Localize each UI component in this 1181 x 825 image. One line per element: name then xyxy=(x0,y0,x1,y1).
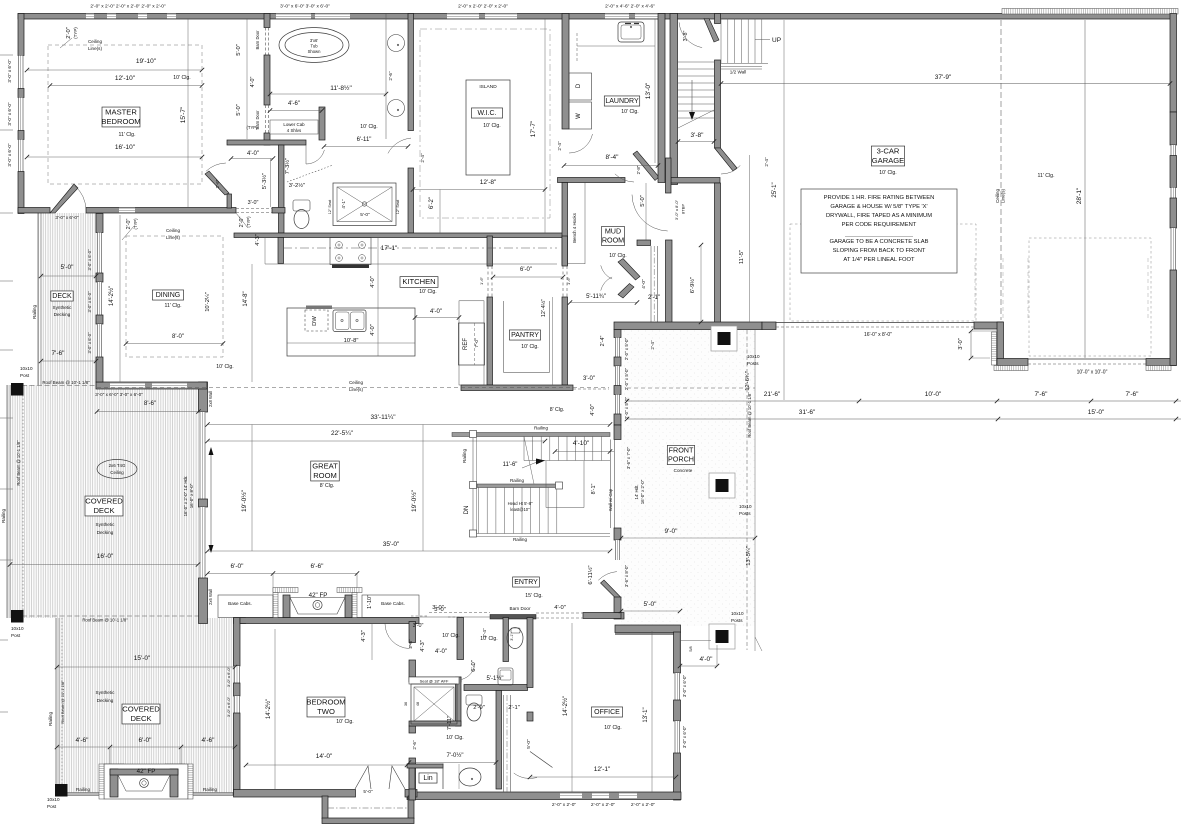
svg-text:4'-0": 4'-0" xyxy=(700,656,714,663)
svg-text:SLOPING FROM BACK TO FRONT: SLOPING FROM BACK TO FRONT xyxy=(833,248,926,254)
svg-text:14'-2½": 14'-2½" xyxy=(265,699,272,719)
svg-text:10' Clg.: 10' Clg. xyxy=(521,344,538,350)
svg-text:42" FP: 42" FP xyxy=(137,768,156,775)
svg-text:Concrete: Concrete xyxy=(674,468,693,473)
svg-text:5'-1½": 5'-1½" xyxy=(487,675,504,682)
svg-text:15'-0": 15'-0" xyxy=(1088,409,1105,416)
svg-text:least@10": least@10" xyxy=(510,507,530,512)
svg-text:3'-0" x 6'-0": 3'-0" x 6'-0" xyxy=(226,696,231,717)
svg-text:37'-9": 37'-9" xyxy=(935,74,952,81)
svg-text:8'-0": 8'-0" xyxy=(172,334,184,340)
svg-text:Railing: Railing xyxy=(462,449,467,463)
svg-text:4'-0": 4'-0" xyxy=(247,151,259,157)
svg-text:4 Shlvs: 4 Shlvs xyxy=(287,128,302,133)
svg-text:2'-6": 2'-6" xyxy=(412,740,417,750)
svg-text:10' Clg.: 10' Clg. xyxy=(609,253,626,259)
svg-text:PER CODE REQUIREMENT: PER CODE REQUIREMENT xyxy=(842,222,917,228)
svg-text:3-CAR: 3-CAR xyxy=(877,147,900,156)
svg-text:GREAT: GREAT xyxy=(312,462,338,471)
svg-text:13'-5¼": 13'-5¼" xyxy=(746,546,752,566)
svg-text:5'-3½": 5'-3½" xyxy=(261,173,268,189)
svg-text:19'-10": 19'-10" xyxy=(136,58,157,65)
svg-text:11' Clg.: 11' Clg. xyxy=(164,303,181,309)
svg-text:4'-0": 4'-0" xyxy=(554,605,566,611)
svg-text:13'-1": 13'-1" xyxy=(643,707,649,722)
svg-text:3'-0" x 6'-0" 3'-0" x 6'-0": 3'-0" x 6'-0" 3'-0" x 6'-0" xyxy=(280,4,330,10)
svg-text:7'-0": 7'-0" xyxy=(474,338,479,348)
svg-text:7'-3½": 7'-3½" xyxy=(284,158,291,174)
svg-text:2'-8": 2'-8" xyxy=(408,639,413,649)
svg-text:15'-7": 15'-7" xyxy=(180,106,187,123)
svg-text:6'-11½": 6'-11½" xyxy=(587,565,594,584)
svg-text:1/2 Wall: 1/2 Wall xyxy=(730,70,746,75)
svg-text:4'-3": 4'-3" xyxy=(255,234,261,246)
svg-text:31'-6": 31'-6" xyxy=(799,409,816,416)
svg-text:Bench 4 Hooks: Bench 4 Hooks xyxy=(572,212,577,243)
svg-text:Seat @ 18" AFF: Seat @ 18" AFF xyxy=(420,679,449,684)
svg-text:9'-0": 9'-0" xyxy=(665,528,679,535)
svg-text:10x10: 10x10 xyxy=(731,611,744,616)
svg-text:(TYP): (TYP) xyxy=(246,216,251,228)
svg-text:2'-0" x 5'-0": 2'-0" x 5'-0" xyxy=(624,368,629,391)
svg-text:BEDROOM: BEDROOM xyxy=(306,698,345,707)
svg-text:Roof Beam @ 10'-1 1/8": Roof Beam @ 10'-1 1/8" xyxy=(60,680,65,724)
svg-text:10' Clg.: 10' Clg. xyxy=(419,289,436,295)
svg-text:10' Clg.: 10' Clg. xyxy=(442,633,459,639)
svg-text:4'-0": 4'-0" xyxy=(590,404,596,416)
svg-text:Line(s): Line(s) xyxy=(1001,189,1006,204)
svg-text:4'-1": 4'-1" xyxy=(341,199,346,209)
svg-text:11'-8½": 11'-8½" xyxy=(330,84,352,92)
svg-text:Posts: Posts xyxy=(747,361,759,366)
svg-text:7'-6": 7'-6" xyxy=(1035,391,1049,398)
svg-text:28'-1": 28'-1" xyxy=(1076,187,1083,204)
svg-text:Head Ht 5'-8": Head Ht 5'-8" xyxy=(508,501,533,506)
svg-text:10x10: 10x10 xyxy=(20,366,33,371)
svg-text:KITCHEN: KITCHEN xyxy=(402,277,435,286)
svg-text:DECK: DECK xyxy=(130,714,151,723)
svg-text:Ceiling: Ceiling xyxy=(110,470,124,475)
svg-text:10' Clg.: 10' Clg. xyxy=(879,170,896,176)
svg-text:19'-0½": 19'-0½" xyxy=(240,489,248,512)
svg-text:2'-0" x 4'-6" 2'-0" x 4'-6": 2'-0" x 4'-6" 2'-0" x 4'-6" xyxy=(605,4,655,10)
svg-text:2x6 Wall: 2x6 Wall xyxy=(208,589,213,605)
svg-text:COVERED: COVERED xyxy=(85,497,123,506)
svg-text:5'-0": 5'-0" xyxy=(236,44,242,56)
svg-text:Line(s): Line(s) xyxy=(88,46,103,51)
svg-text:5'-11¾": 5'-11¾" xyxy=(586,294,606,300)
svg-text:Roof Beam @ 10'-1 1/8": Roof Beam @ 10'-1 1/8" xyxy=(16,440,21,486)
svg-text:Lin: Lin xyxy=(423,775,432,782)
svg-text:ISLAND: ISLAND xyxy=(479,84,497,90)
svg-text:12'-10": 12'-10" xyxy=(115,75,136,82)
svg-text:10'-8": 10'-8" xyxy=(344,338,359,344)
svg-text:MUD: MUD xyxy=(605,227,621,236)
svg-text:4'-3": 4'-3" xyxy=(420,640,426,652)
svg-text:17'-1": 17'-1" xyxy=(381,245,398,252)
svg-text:DN: DN xyxy=(464,506,470,515)
svg-text:7'-6": 7'-6" xyxy=(52,350,66,357)
svg-text:COVERED: COVERED xyxy=(122,705,160,714)
svg-text:Ceiling: Ceiling xyxy=(349,380,363,385)
svg-text:8' Clg.: 8' Clg. xyxy=(550,407,565,413)
svg-text:Line(s): Line(s) xyxy=(349,387,364,392)
svg-text:36: 36 xyxy=(404,702,408,706)
svg-text:Railing: Railing xyxy=(510,478,524,483)
svg-text:5'-0": 5'-0" xyxy=(640,195,646,207)
svg-text:W.I.C.: W.I.C. xyxy=(477,110,496,117)
svg-text:Railing: Railing xyxy=(32,305,37,319)
svg-text:10' Clg.: 10' Clg. xyxy=(173,75,190,81)
svg-text:Post: Post xyxy=(20,373,30,378)
svg-text:Synthetic: Synthetic xyxy=(96,690,116,695)
svg-text:2'-0": 2'-0" xyxy=(66,27,72,39)
svg-text:6'-0": 6'-0" xyxy=(471,660,477,672)
svg-text:PORCH: PORCH xyxy=(668,454,694,463)
svg-text:AT 1/4" PER LINEAL FOOT: AT 1/4" PER LINEAL FOOT xyxy=(843,257,915,263)
svg-text:25'-1": 25'-1" xyxy=(772,182,778,197)
svg-text:Roof Beam @ 10'-1 1/8": Roof Beam @ 10'-1 1/8" xyxy=(42,380,90,385)
svg-text:PROVIDE 1 HR. FIRE RATING BETW: PROVIDE 1 HR. FIRE RATING BETWEEN xyxy=(824,195,935,201)
svg-text:Tub: Tub xyxy=(310,44,318,49)
svg-text:12'-4½": 12'-4½" xyxy=(540,299,547,317)
svg-text:1'-6": 1'-6" xyxy=(479,276,484,285)
svg-text:3'-0": 3'-0" xyxy=(248,200,259,206)
svg-text:10' Clg.: 10' Clg. xyxy=(621,109,638,115)
svg-text:3'-6" x 8'-0": 3'-6" x 8'-0" xyxy=(624,565,629,588)
svg-text:12'-1": 12'-1" xyxy=(594,766,611,773)
svg-text:6'-0": 6'-0" xyxy=(520,267,532,273)
svg-text:Barn Door: Barn Door xyxy=(255,30,260,50)
svg-text:7'-0½": 7'-0½" xyxy=(447,752,464,759)
svg-text:FRONT: FRONT xyxy=(669,446,694,455)
svg-text:4'-0": 4'-0" xyxy=(370,276,376,288)
svg-text:14'-2½": 14'-2½" xyxy=(108,286,115,306)
svg-text:Railing: Railing xyxy=(1,509,6,523)
svg-text:2'-0" x 2'-0": 2'-0" x 2'-0" xyxy=(552,802,576,808)
svg-text:DRYWALL, FIRE TAPED AS A MINIM: DRYWALL, FIRE TAPED AS A MINIMUM xyxy=(826,213,932,219)
svg-text:10' Clg.: 10' Clg. xyxy=(336,719,353,725)
svg-text:2'-0" x 5'-0": 2'-0" x 5'-0" xyxy=(624,338,629,361)
svg-text:10' Clg.: 10' Clg. xyxy=(216,364,233,370)
svg-text:MASTER: MASTER xyxy=(105,108,137,117)
svg-text:2'-0": 2'-0" xyxy=(126,219,132,230)
svg-text:Decking: Decking xyxy=(97,530,114,535)
svg-text:BEDROOM: BEDROOM xyxy=(101,117,140,126)
svg-text:14'-0": 14'-0" xyxy=(316,753,333,760)
svg-text:ENTRY: ENTRY xyxy=(514,579,538,586)
svg-text:14'-8": 14'-8" xyxy=(243,291,249,306)
svg-text:3'-0" x 6'-0": 3'-0" x 6'-0" xyxy=(55,215,79,220)
svg-text:3'-0" x 6'-0": 3'-0" x 6'-0" xyxy=(87,249,92,271)
svg-text:3'-0" x 6'-0": 3'-0" x 6'-0" xyxy=(7,59,12,83)
svg-text:3'-0" x 6'-0" 3'-0" x 6'-0": 3'-0" x 6'-0" 3'-0" x 6'-0" xyxy=(95,392,143,397)
svg-text:2'-4": 2'-4" xyxy=(600,336,606,347)
svg-text:3'-0" x 6'-0": 3'-0" x 6'-0" xyxy=(682,726,687,749)
svg-text:3'-0" x 6'-0": 3'-0" x 6'-0" xyxy=(226,666,231,687)
svg-text:5'-0": 5'-0" xyxy=(61,264,75,271)
svg-text:3'-0": 3'-0" xyxy=(432,605,444,611)
svg-text:10'-0": 10'-0" xyxy=(925,391,942,398)
svg-text:2x8 Wall: 2x8 Wall xyxy=(208,391,213,407)
svg-text:6'-6": 6'-6" xyxy=(311,563,325,570)
svg-text:4'-0": 4'-0" xyxy=(370,324,376,336)
svg-text:4'-3": 4'-3" xyxy=(361,630,367,642)
svg-text:22'-5¼": 22'-5¼" xyxy=(331,430,354,437)
svg-text:6'-9½": 6'-9½" xyxy=(689,277,696,293)
svg-text:UP: UP xyxy=(772,37,781,44)
svg-text:3'-0": 3'-0" xyxy=(958,338,964,350)
svg-text:Railing: Railing xyxy=(513,537,527,542)
svg-text:DW: DW xyxy=(312,316,318,326)
svg-text:6'-0": 6'-0" xyxy=(139,737,153,744)
svg-text:16'-10": 16'-10" xyxy=(115,144,136,151)
svg-text:3'-0" x 8'-0": 3'-0" x 8'-0" xyxy=(674,199,679,220)
svg-text:3'-0" x 6'-0": 3'-0" x 6'-0" xyxy=(87,332,92,354)
svg-text:Railing: Railing xyxy=(203,787,217,792)
svg-text:Decking: Decking xyxy=(54,312,71,317)
svg-text:Ceiling: Ceiling xyxy=(166,228,180,233)
svg-text:10'-2¼": 10'-2¼" xyxy=(205,292,211,312)
svg-text:10x10: 10x10 xyxy=(747,354,760,359)
svg-text:2'-4": 2'-4" xyxy=(650,340,655,350)
svg-text:3'-1": 3'-1" xyxy=(510,633,514,641)
svg-text:DINING: DINING xyxy=(156,292,181,299)
svg-text:Lower Cab: Lower Cab xyxy=(283,122,305,127)
svg-text:1'-6": 1'-6" xyxy=(566,276,571,285)
svg-text:TWO: TWO xyxy=(317,707,335,716)
svg-text:5'-0": 5'-0" xyxy=(644,601,658,608)
svg-text:(TYP): (TYP) xyxy=(133,218,138,230)
svg-text:4'-6": 4'-6" xyxy=(202,737,216,744)
svg-text:12" Seat: 12" Seat xyxy=(396,199,400,214)
svg-text:(TYP): (TYP) xyxy=(73,27,78,39)
svg-text:13'-0": 13'-0" xyxy=(645,82,652,99)
svg-text:4'-6": 4'-6" xyxy=(288,101,300,107)
svg-text:GARAGE & HOUSE W/ 5/8" TYPE 'X: GARAGE & HOUSE W/ 5/8" TYPE 'X' xyxy=(830,204,927,210)
svg-text:5'-0": 5'-0" xyxy=(363,789,373,794)
svg-text:2'-4": 2'-4" xyxy=(482,628,487,638)
svg-text:19'-0½": 19'-0½" xyxy=(410,489,418,512)
svg-text:2'-0" x 5'-0": 2'-0" x 5'-0" xyxy=(624,397,629,420)
svg-text:11' Clg.: 11' Clg. xyxy=(1037,173,1054,179)
svg-text:12'-8": 12'-8" xyxy=(480,179,497,186)
svg-text:15'-0": 15'-0" xyxy=(134,655,151,662)
svg-text:10' Clg.: 10' Clg. xyxy=(604,725,621,731)
svg-text:2'-0" x 2'-0" 2'-0" x 2'-0": 2'-0" x 2'-0" 2'-0" x 2'-0" 2'-0" x 2'-0… xyxy=(90,4,165,10)
svg-text:4'-0": 4'-0" xyxy=(430,309,442,315)
svg-text:10x10: 10x10 xyxy=(739,504,752,509)
svg-text:3'-0": 3'-0" xyxy=(413,623,424,629)
svg-text:3'-8": 3'-8" xyxy=(683,31,689,42)
svg-text:15' Clg.: 15' Clg. xyxy=(525,593,542,599)
svg-text:3'x6': 3'x6' xyxy=(310,38,319,43)
svg-text:(TYP): (TYP) xyxy=(247,125,259,130)
svg-text:DECK: DECK xyxy=(52,293,72,300)
svg-text:Posts: Posts xyxy=(731,618,743,623)
svg-text:Base Cabs.: Base Cabs. xyxy=(228,601,252,606)
svg-text:2'-8": 2'-8" xyxy=(636,165,641,174)
svg-text:4'-10": 4'-10" xyxy=(573,440,590,447)
svg-text:Shown: Shown xyxy=(308,49,321,54)
svg-text:7'-6": 7'-6" xyxy=(1126,391,1140,398)
svg-text:42" FP: 42" FP xyxy=(309,592,328,599)
svg-text:14' Hdt.: 14' Hdt. xyxy=(634,485,639,500)
svg-text:2'-1": 2'-1" xyxy=(648,295,660,301)
svg-text:16'-0" x 8'-0": 16'-0" x 8'-0" xyxy=(864,332,892,338)
svg-text:ROOM: ROOM xyxy=(313,471,337,480)
svg-text:8' Clg.: 8' Clg. xyxy=(320,483,335,489)
svg-text:2'-6": 2'-6" xyxy=(388,71,393,81)
svg-text:W: W xyxy=(576,113,582,119)
svg-text:8'-4": 8'-4" xyxy=(606,154,620,161)
svg-text:LAUNDRY: LAUNDRY xyxy=(605,98,639,105)
svg-text:3'-6" x 7'-0": 3'-6" x 7'-0" xyxy=(626,447,631,470)
svg-text:Decking: Decking xyxy=(97,698,114,703)
svg-text:10x10: 10x10 xyxy=(11,626,24,631)
svg-text:ROOM: ROOM xyxy=(602,235,624,244)
svg-text:10' Clg.: 10' Clg. xyxy=(446,735,463,741)
svg-text:3'-0" x 6'-0": 3'-0" x 6'-0" xyxy=(87,291,92,313)
svg-text:OFFICE: OFFICE xyxy=(594,709,620,716)
svg-text:16'-0" x 8'-0": 16'-0" x 8'-0" xyxy=(189,483,194,508)
svg-text:3'-0": 3'-0" xyxy=(583,376,595,382)
svg-text:21'-6": 21'-6" xyxy=(764,391,781,398)
svg-text:48: 48 xyxy=(416,702,420,706)
svg-text:10' Clg.: 10' Clg. xyxy=(483,123,500,129)
svg-text:Railing: Railing xyxy=(534,426,548,431)
svg-text:11'-5": 11'-5" xyxy=(739,250,745,264)
svg-text:2'-0" x 2'-0": 2'-0" x 2'-0" xyxy=(591,802,615,808)
svg-text:Line(s): Line(s) xyxy=(166,235,181,240)
svg-text:14'-2½": 14'-2½" xyxy=(562,696,569,716)
svg-text:Roof Beam @ 10'-1 1/8": Roof Beam @ 10'-1 1/8" xyxy=(747,392,752,438)
svg-text:Railing: Railing xyxy=(48,712,53,726)
svg-text:3'-0" x 6'-0": 3'-0" x 6'-0" xyxy=(7,143,12,167)
svg-text:2'-4": 2'-4" xyxy=(557,141,562,151)
svg-text:12" Seat: 12" Seat xyxy=(328,199,332,214)
svg-text:1'-10": 1'-10" xyxy=(367,595,373,609)
svg-text:8'-1": 8'-1" xyxy=(591,484,597,495)
svg-text:6'-0": 6'-0" xyxy=(231,563,245,570)
svg-text:6'-2": 6'-2" xyxy=(429,197,435,209)
svg-text:PANTRY: PANTRY xyxy=(511,332,539,339)
svg-text:GARAGE TO BE A CONCRETE SLAB: GARAGE TO BE A CONCRETE SLAB xyxy=(829,239,928,245)
svg-text:3'-2½": 3'-2½" xyxy=(289,182,305,189)
svg-text:16'-0" x 2'-0": 16'-0" x 2'-0" xyxy=(640,479,645,504)
svg-text:Ceiling: Ceiling xyxy=(995,189,1000,203)
svg-text:5'-0": 5'-0" xyxy=(236,104,242,116)
svg-text:7'-11": 7'-11" xyxy=(447,716,453,730)
svg-text:16'-0": 16'-0" xyxy=(97,553,114,560)
svg-text:33'-11¼": 33'-11¼" xyxy=(370,414,396,421)
svg-text:2'-6": 2'-6" xyxy=(215,179,220,188)
svg-text:10' Clg.: 10' Clg. xyxy=(360,124,377,130)
svg-text:REF: REF xyxy=(463,338,469,350)
svg-text:2x6 T4G: 2x6 T4G xyxy=(109,463,126,468)
svg-text:2'-4": 2'-4" xyxy=(764,157,769,167)
svg-text:2'-0" x 2'-0": 2'-0" x 2'-0" xyxy=(631,802,655,808)
svg-text:D: D xyxy=(576,83,582,88)
svg-text:Posts: Posts xyxy=(739,511,751,516)
svg-text:6'-11": 6'-11" xyxy=(357,137,372,143)
svg-text:4'-0": 4'-0" xyxy=(250,77,256,88)
svg-text:Ceiling: Ceiling xyxy=(88,39,102,44)
svg-text:Post: Post xyxy=(11,633,21,638)
svg-text:16'-0" x 2'-0" 14' Hdr.: 16'-0" x 2'-0" 14' Hdr. xyxy=(183,476,188,517)
svg-text:8'-6": 8'-6" xyxy=(144,401,156,407)
svg-text:Synthetic: Synthetic xyxy=(53,305,73,310)
svg-text:Roof Beam @ 10'-1 1/8": Roof Beam @ 10'-1 1/8" xyxy=(82,618,128,623)
svg-text:Synthetic: Synthetic xyxy=(96,522,116,527)
svg-text:3'-8": 3'-8" xyxy=(691,132,705,139)
svg-text:5/8: 5/8 xyxy=(689,646,693,651)
svg-text:Base Cabs.: Base Cabs. xyxy=(381,601,405,606)
svg-text:5'-0": 5'-0" xyxy=(360,212,370,218)
svg-text:17'-7": 17'-7" xyxy=(530,120,537,137)
svg-text:4'-6": 4'-6" xyxy=(76,737,90,744)
svg-text:11' Clg.: 11' Clg. xyxy=(118,132,135,138)
svg-text:2'-0" x 2'-0" 2'-0" x 2'-0": 2'-0" x 2'-0" 2'-0" x 2'-0" xyxy=(458,4,508,10)
svg-text:10x10: 10x10 xyxy=(47,797,60,802)
svg-text:DECK: DECK xyxy=(93,506,114,515)
svg-text:11'-6": 11'-6" xyxy=(503,462,518,468)
svg-text:2'-4": 2'-4" xyxy=(420,153,425,163)
svg-text:Railing: Railing xyxy=(76,787,90,792)
svg-text:35'-0": 35'-0" xyxy=(383,541,400,548)
svg-text:10'-0" x 10'-0": 10'-0" x 10'-0" xyxy=(1077,370,1108,376)
svg-text:3'-0" x 6'-0": 3'-0" x 6'-0" xyxy=(7,102,12,126)
svg-text:8TBP: 8TBP xyxy=(681,204,686,214)
svg-text:Barn Door: Barn Door xyxy=(510,606,531,611)
svg-text:4'-0": 4'-0" xyxy=(641,279,647,289)
svg-text:GARAGE: GARAGE xyxy=(872,156,905,165)
svg-text:Post: Post xyxy=(47,804,57,809)
svg-text:Wall w/ Cap: Wall w/ Cap xyxy=(608,488,613,511)
svg-text:5'-0": 5'-0" xyxy=(526,739,532,749)
svg-text:2'-1": 2'-1" xyxy=(508,705,520,711)
svg-text:2'-9": 2'-9" xyxy=(473,705,485,711)
svg-text:4'-0": 4'-0" xyxy=(435,649,447,655)
svg-text:3'-0" x 6'-0": 3'-0" x 6'-0" xyxy=(682,675,687,698)
